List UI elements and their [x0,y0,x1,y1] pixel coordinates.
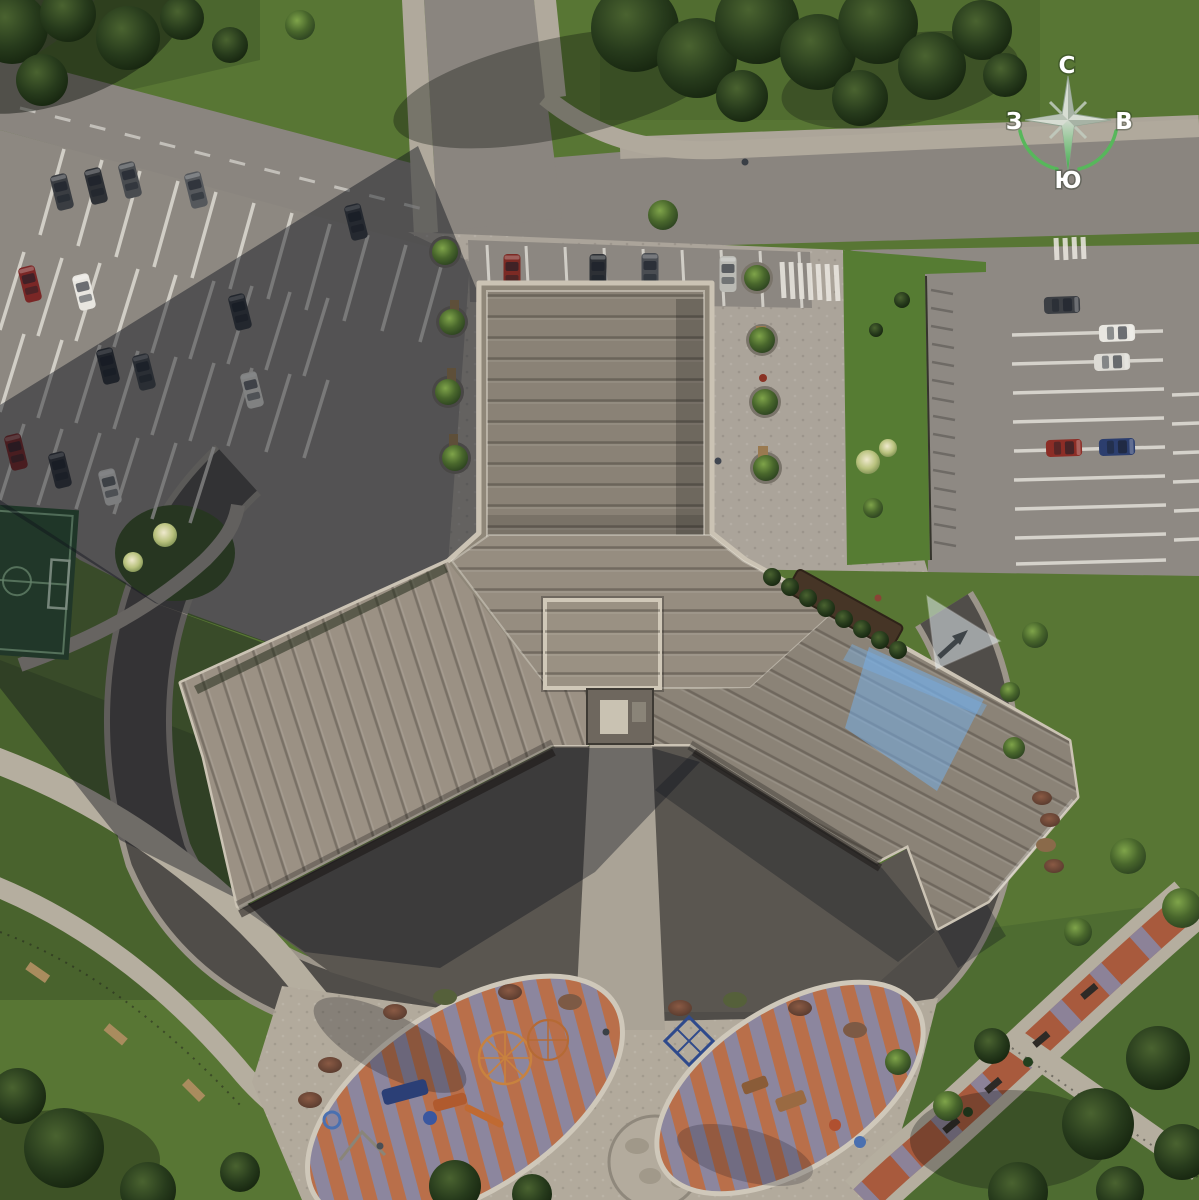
car [1099,438,1136,456]
central-stair-roof [545,600,660,688]
car [720,256,737,292]
elevator-shaft [587,689,653,744]
compass-north-label: С [1059,53,1076,79]
car [1094,353,1131,371]
compass-south-label: Ю [1055,168,1082,194]
compass-west-label: З [1006,109,1022,135]
car [1044,296,1081,314]
aerial-site-plan: С В З Ю [0,0,1199,1200]
car [1046,439,1083,457]
compass-east-label: В [1115,109,1133,135]
car [1099,324,1136,342]
north-wing-roof [487,291,704,537]
